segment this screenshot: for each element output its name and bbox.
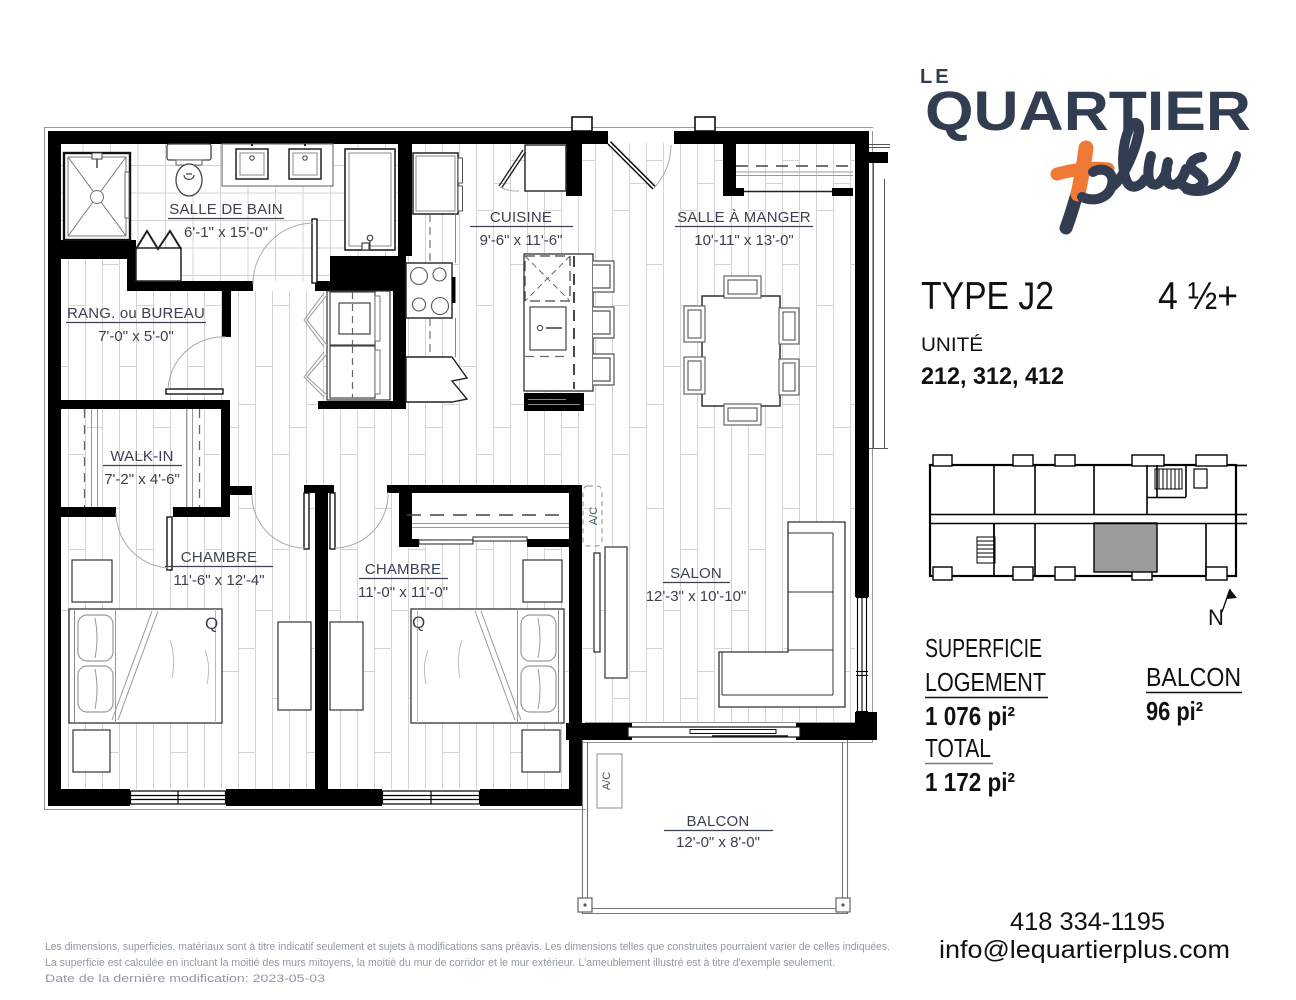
svg-text:A/C: A/C: [588, 507, 600, 525]
svg-text:1 076 pi²: 1 076 pi²: [925, 701, 1015, 731]
svg-text:418 334-1195: 418 334-1195: [1010, 908, 1165, 936]
svg-text:12'-0" x 8'-0": 12'-0" x 8'-0": [676, 834, 760, 851]
svg-text:N: N: [1208, 605, 1224, 630]
svg-text:LOGEMENT: LOGEMENT: [925, 667, 1046, 697]
svg-text:QUARTIER: QUARTIER: [925, 79, 1251, 142]
svg-text:96 pi²: 96 pi²: [1146, 696, 1203, 726]
svg-text:info@lequartierplus.com: info@lequartierplus.com: [939, 936, 1230, 964]
svg-text:UNITÉ: UNITÉ: [921, 333, 983, 356]
svg-text:Les dimensions, superficies, m: Les dimensions, superficies, matériaux s…: [45, 941, 890, 953]
svg-text:TYPE J2: TYPE J2: [921, 275, 1054, 318]
svg-text:1 172 pi²: 1 172 pi²: [925, 767, 1015, 797]
svg-text:Date de la dernière modificati: Date de la dernière modification: 2023-0…: [45, 973, 325, 985]
svg-text:11'-6" x 12'-4": 11'-6" x 12'-4": [173, 572, 264, 589]
svg-text:BALCON: BALCON: [687, 813, 750, 830]
svg-text:10'-11" x 13'-0": 10'-11" x 13'-0": [694, 232, 794, 249]
svg-text:RANG. ou BUREAU: RANG. ou BUREAU: [67, 305, 205, 322]
svg-text:TOTAL: TOTAL: [925, 733, 991, 763]
svg-text:Q: Q: [412, 613, 425, 632]
svg-text:7'-0" x 5'-0": 7'-0" x 5'-0": [98, 328, 174, 345]
svg-text:7'-2" x 4'-6": 7'-2" x 4'-6": [104, 471, 180, 488]
svg-text:212, 312, 412: 212, 312, 412: [921, 363, 1064, 390]
svg-text:La superficie est calculée en: La superficie est calculée en incluant l…: [45, 957, 835, 969]
svg-text:BALCON: BALCON: [1146, 662, 1241, 692]
svg-text:WALK-IN: WALK-IN: [110, 448, 173, 465]
svg-text:SALLE DE BAIN: SALLE DE BAIN: [169, 201, 282, 218]
svg-text:12'-3" x 10'-10": 12'-3" x 10'-10": [646, 588, 747, 605]
svg-text:SUPERFICIE: SUPERFICIE: [925, 633, 1042, 663]
svg-text:11'-0" x 11'-0": 11'-0" x 11'-0": [358, 584, 448, 601]
svg-text:SALON: SALON: [670, 565, 722, 582]
svg-text:4 ½+: 4 ½+: [1158, 275, 1238, 318]
svg-text:A/C: A/C: [601, 772, 613, 790]
svg-text:CUISINE: CUISINE: [490, 209, 552, 226]
svg-text:CHAMBRE: CHAMBRE: [365, 561, 441, 578]
svg-text:CHAMBRE: CHAMBRE: [181, 549, 257, 566]
svg-text:SALLE À MANGER: SALLE À MANGER: [677, 209, 811, 226]
svg-text:Q: Q: [205, 614, 218, 633]
svg-text:6'-1" x 15'-0": 6'-1" x 15'-0": [184, 224, 268, 241]
svg-text:9'-6" x 11'-6": 9'-6" x 11'-6": [480, 232, 563, 249]
